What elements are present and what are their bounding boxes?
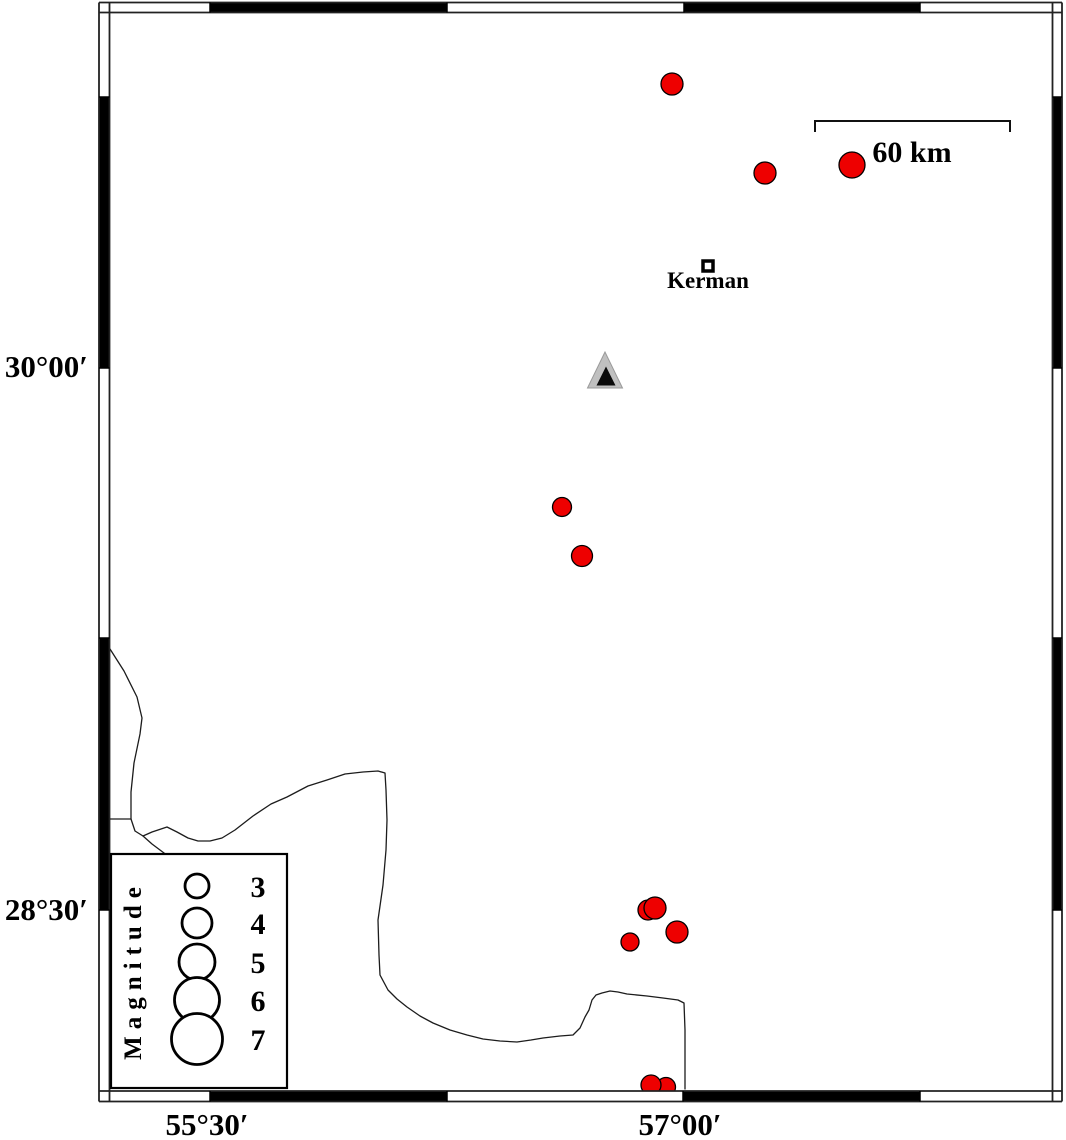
epicenter-circle	[572, 546, 593, 567]
epicenter-circle	[666, 921, 688, 943]
frame-black-left	[99, 638, 110, 910]
station-marker	[588, 352, 623, 388]
legend-magnitude-value: 6	[251, 985, 266, 1018]
legend-magnitude-circle	[185, 874, 209, 898]
scale-bar-label: 60 km	[872, 136, 951, 169]
seismicity-map: 60 km Kerman 30°00′28°30′55°30′57°00′ Ma…	[0, 0, 1066, 1140]
frame-black-right	[1053, 638, 1063, 910]
scale-bar-bracket	[815, 121, 1010, 132]
legend-title: Magnitude	[120, 880, 147, 1060]
legend-magnitude-circle	[182, 908, 212, 938]
frame-black-bottom	[683, 1091, 920, 1102]
longitude-label: 57°00′	[638, 1107, 721, 1140]
legend-magnitude-value: 4	[251, 908, 266, 941]
legend-magnitude-value: 5	[251, 947, 266, 980]
legend-magnitude-value: 3	[251, 871, 266, 904]
legend-magnitude-circle	[179, 944, 215, 980]
legend-magnitude-circle	[172, 1014, 223, 1065]
frame-black-left	[99, 97, 110, 368]
frame-black-top	[684, 3, 920, 13]
city-label: Kerman	[667, 268, 749, 293]
frame-black-right	[1053, 97, 1063, 368]
frame-black-top	[210, 3, 447, 13]
city-marker-kerman: Kerman	[667, 261, 749, 293]
epicenter-circle	[553, 498, 572, 517]
latitude-label: 28°30′	[5, 892, 88, 927]
legend-magnitude-value: 7	[251, 1024, 266, 1057]
map-canvas: 60 km Kerman 30°00′28°30′55°30′57°00′ Ma…	[0, 0, 1066, 1140]
epicenter-circle	[839, 152, 865, 178]
latitude-label: 30°00′	[5, 349, 88, 384]
magnitude-legend: Magnitude 34567	[111, 854, 287, 1088]
earthquake-layer	[553, 73, 866, 1097]
epicenter-circle	[754, 162, 776, 184]
frame-black-bottom	[210, 1091, 447, 1102]
epicenter-circle	[661, 73, 683, 95]
epicenter-circle	[621, 933, 639, 951]
longitude-label: 55°30′	[165, 1107, 248, 1140]
epicenter-circle	[644, 897, 666, 919]
